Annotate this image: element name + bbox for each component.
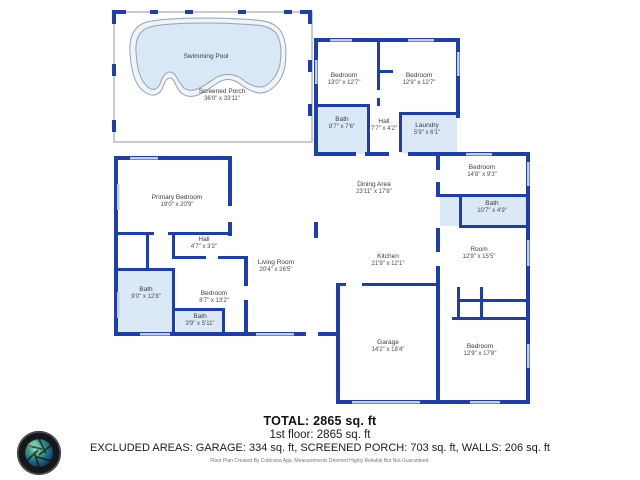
first-floor-area-text: 1st floor: 2865 sq. ft bbox=[0, 429, 640, 441]
swimming-pool-shape bbox=[130, 18, 286, 96]
floor-plan-page: Swimming Pool Screened Porch36'0" x 33'1… bbox=[0, 0, 640, 480]
disclaimer-text: Floor Plan Created By Cubicasa App. Meas… bbox=[0, 458, 640, 464]
camera-globe-logo-icon bbox=[15, 429, 63, 477]
wet-room-fills bbox=[117, 106, 527, 333]
total-area-text: TOTAL: 2865 sq. ft bbox=[0, 414, 640, 428]
floor-plan-drawing bbox=[0, 0, 640, 412]
excluded-areas-text: EXCLUDED AREAS: GARAGE: 334 sq. ft, SCRE… bbox=[0, 442, 640, 454]
summary-block: TOTAL: 2865 sq. ft 1st floor: 2865 sq. f… bbox=[0, 414, 640, 464]
